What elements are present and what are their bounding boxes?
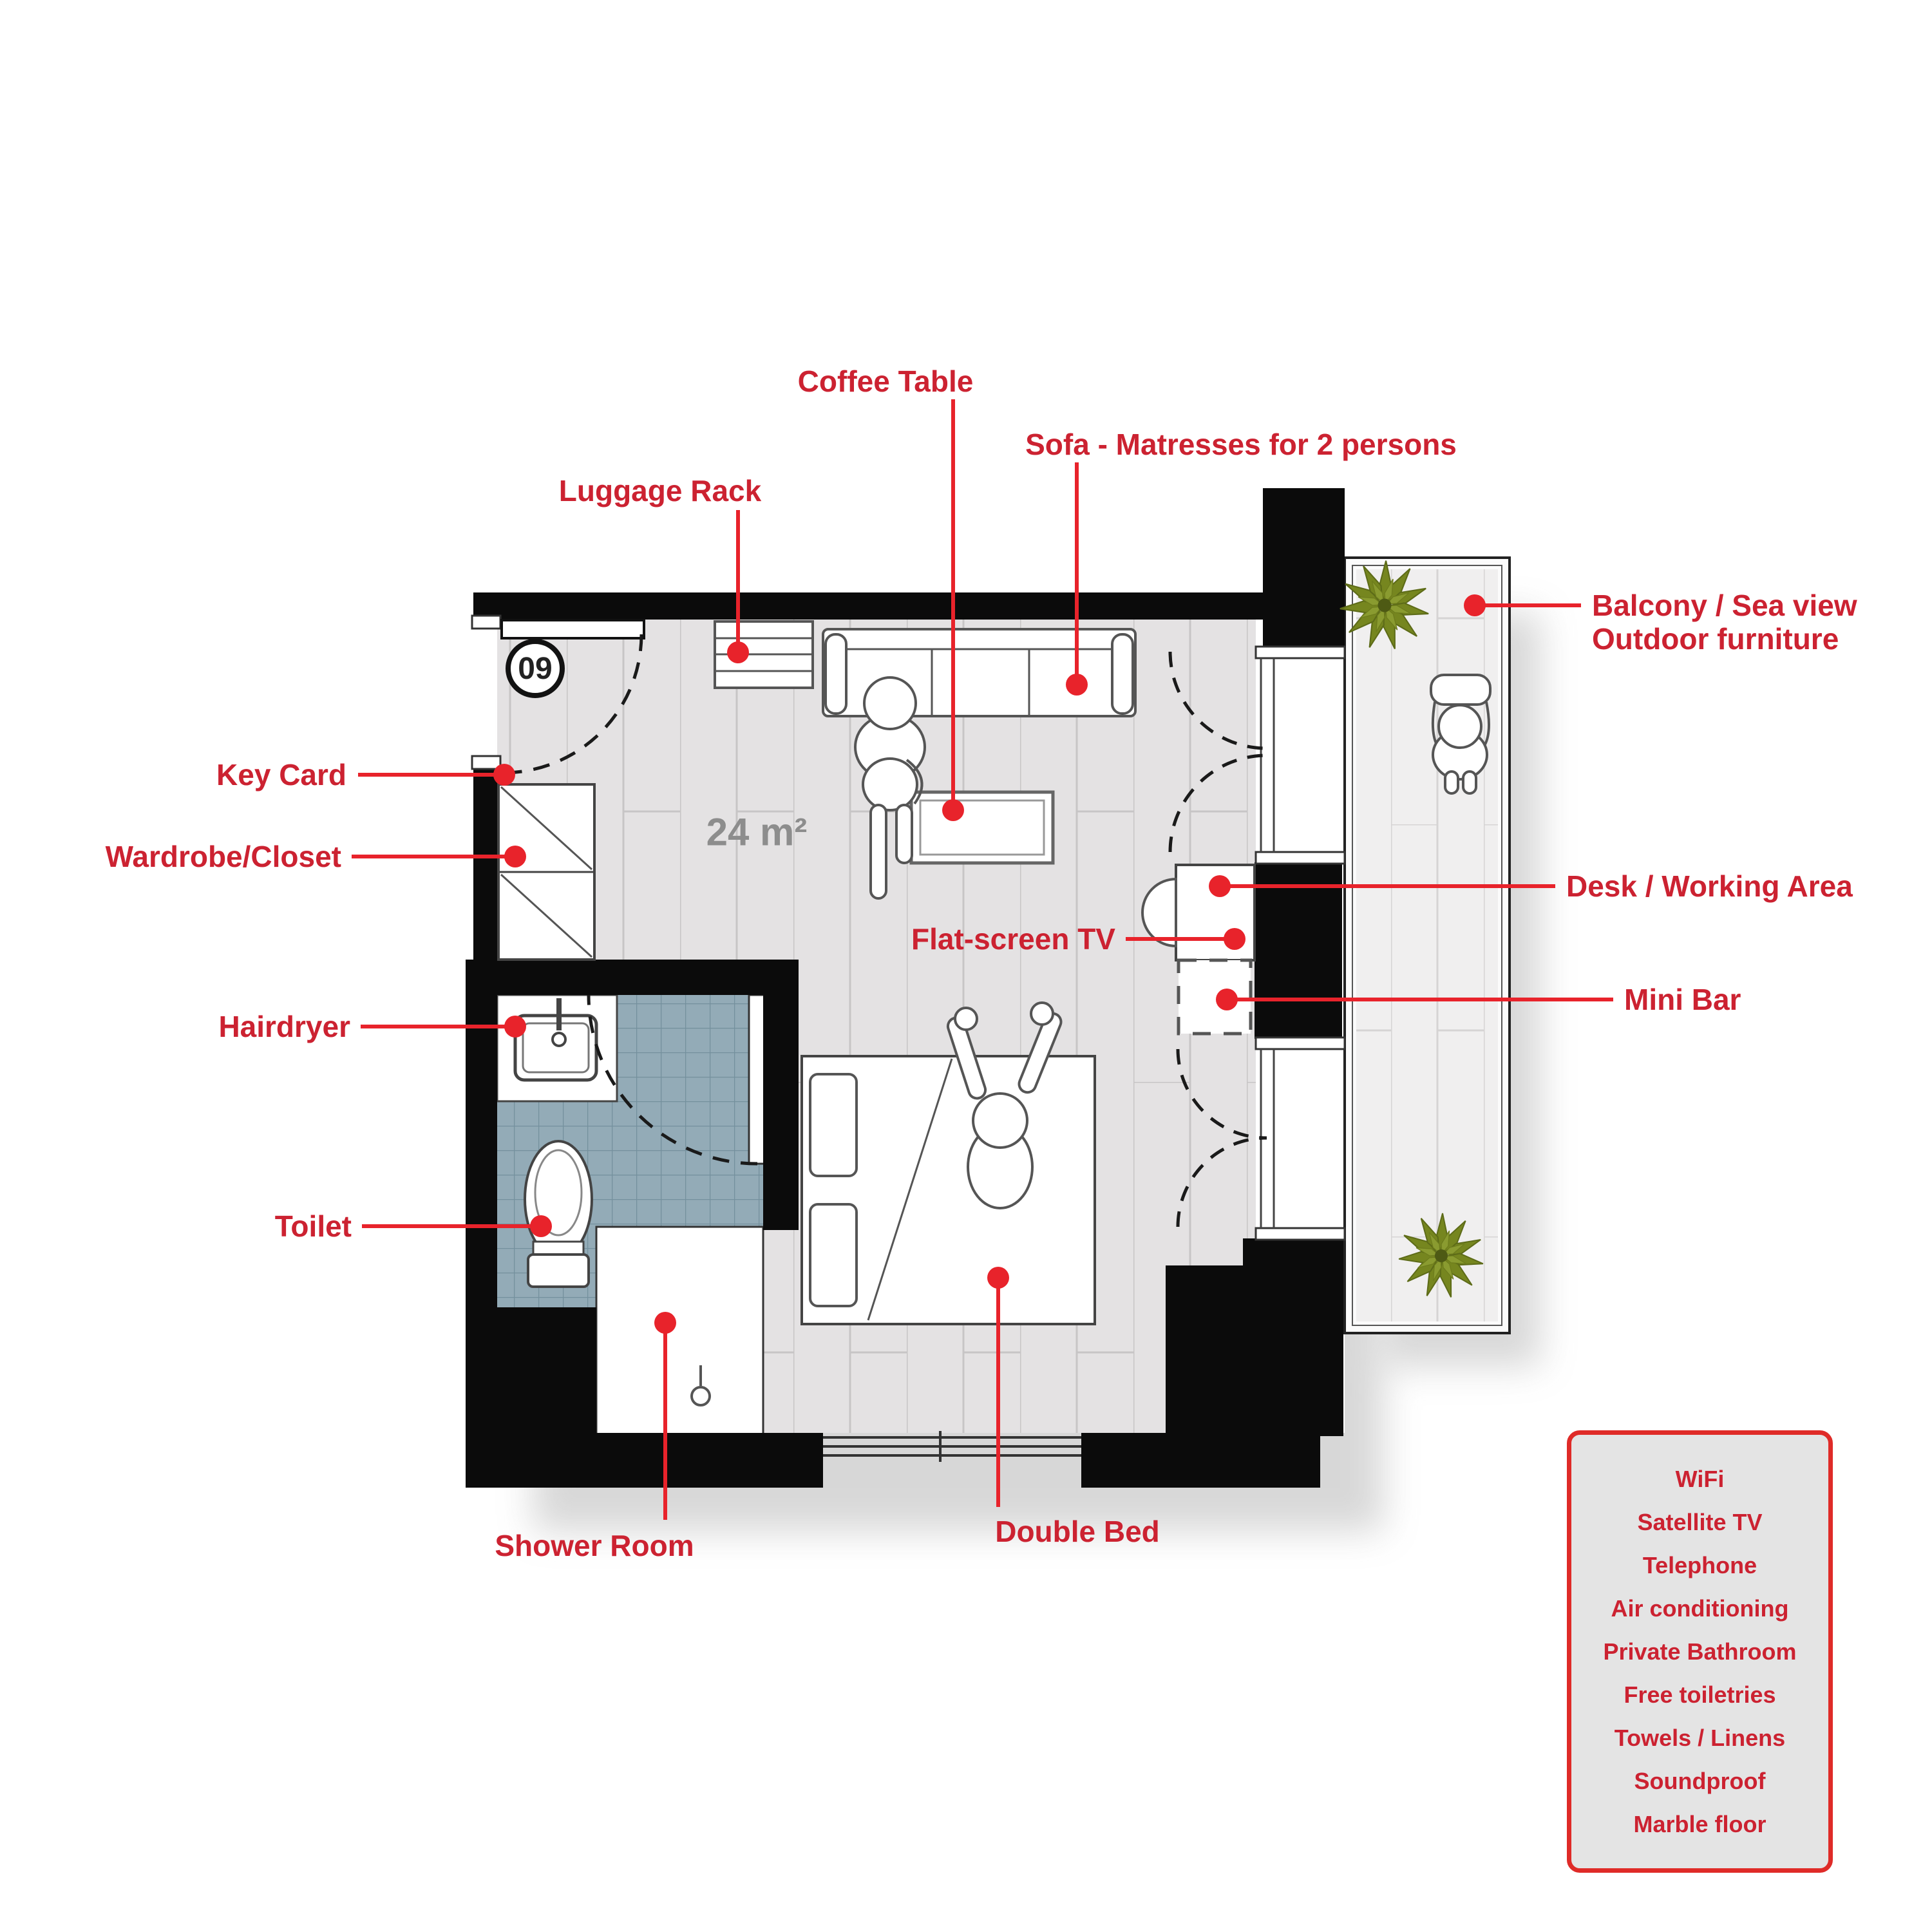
shower-floor (596, 1227, 763, 1439)
toilet-icon (525, 1141, 592, 1287)
legend-item: Private Bathroom (1603, 1640, 1796, 1663)
label-balcony-line2: Outdoor furniture (1592, 622, 1839, 656)
legend-item: Satellite TV (1637, 1511, 1762, 1534)
legend-item: Telephone (1643, 1554, 1757, 1577)
pillow-icon (810, 1204, 857, 1306)
minibar-icon (1179, 960, 1251, 1034)
label-double-bed: Double Bed (995, 1515, 1160, 1548)
legend-item: Towels / Linens (1615, 1727, 1785, 1750)
label-shower-room: Shower Room (495, 1529, 694, 1562)
room-area-label: 24 m² (706, 810, 808, 855)
double-bed-icon (802, 1056, 1095, 1324)
label-toilet: Toilet (275, 1209, 352, 1243)
legend-item: Free toiletries (1624, 1683, 1776, 1707)
label-wardrobe: Wardrobe/Closet (106, 840, 341, 873)
sink-icon (497, 995, 617, 1101)
room-number-badge: 09 (506, 639, 565, 698)
floor-plan-page: Coffee Table Sofa - Matresses for 2 pers… (0, 0, 1932, 1932)
label-balcony-line1: Balcony / Sea view (1592, 589, 1857, 622)
pillow-icon (810, 1074, 857, 1176)
shower-drain-icon (692, 1387, 710, 1405)
legend-item: Marble floor (1633, 1813, 1766, 1836)
amenities-legend: WiFiSatellite TVTelephoneAir conditionin… (1567, 1430, 1833, 1873)
label-hairdryer: Hairdryer (218, 1010, 350, 1043)
label-key-card: Key Card (216, 758, 346, 791)
label-sofa: Sofa - Matresses for 2 persons (1025, 428, 1457, 461)
wardrobe-icon (498, 784, 594, 960)
label-luggage-rack: Luggage Rack (559, 474, 761, 507)
legend-item: Soundproof (1634, 1770, 1766, 1793)
balcony (1345, 558, 1510, 1333)
label-mini-bar: Mini Bar (1624, 983, 1741, 1016)
label-desk: Desk / Working Area (1566, 869, 1853, 903)
legend-item: WiFi (1676, 1468, 1725, 1491)
label-flat-screen-tv: Flat-screen TV (911, 922, 1115, 956)
coffee-table-icon (911, 792, 1053, 863)
label-coffee-table: Coffee Table (798, 365, 974, 398)
legend-item: Air conditioning (1611, 1597, 1789, 1620)
